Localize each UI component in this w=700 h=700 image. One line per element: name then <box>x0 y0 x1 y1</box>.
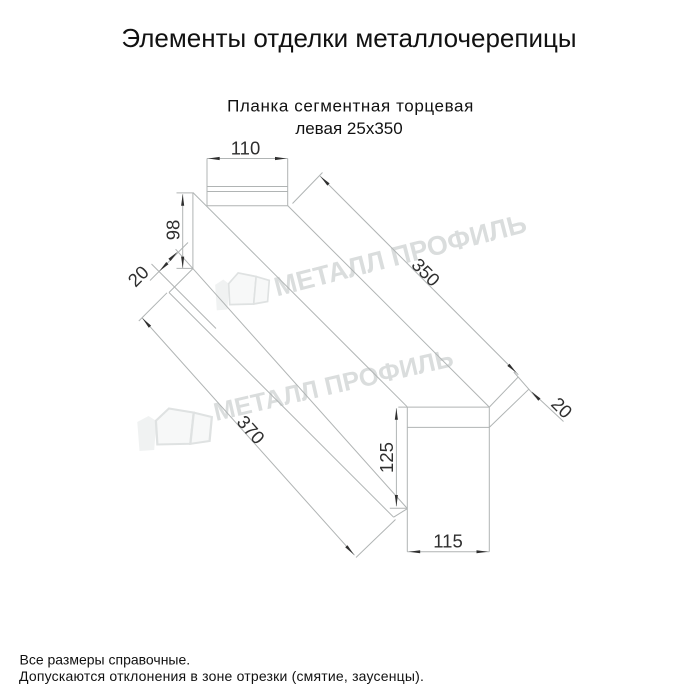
svg-text:Все размеры справочные.: Все размеры справочные. <box>20 652 191 668</box>
svg-text:Элементы отделки металлочерепи: Элементы отделки металлочерепицы <box>121 23 576 53</box>
svg-text:115: 115 <box>433 531 463 552</box>
svg-text:Допускаются отклонения в зоне: Допускаются отклонения в зоне отрезки (с… <box>19 668 424 684</box>
svg-text:125: 125 <box>376 442 397 473</box>
svg-text:98: 98 <box>163 220 184 241</box>
svg-text:20: 20 <box>547 393 576 422</box>
svg-text:левая 25х350: левая 25х350 <box>295 119 402 138</box>
svg-text:МЕТАЛЛ ПРОФИЛЬ: МЕТАЛЛ ПРОФИЛЬ <box>271 208 530 302</box>
svg-text:Планка сегментная торцевая: Планка сегментная торцевая <box>227 97 474 116</box>
svg-text:20: 20 <box>123 261 152 290</box>
svg-text:110: 110 <box>231 138 261 159</box>
